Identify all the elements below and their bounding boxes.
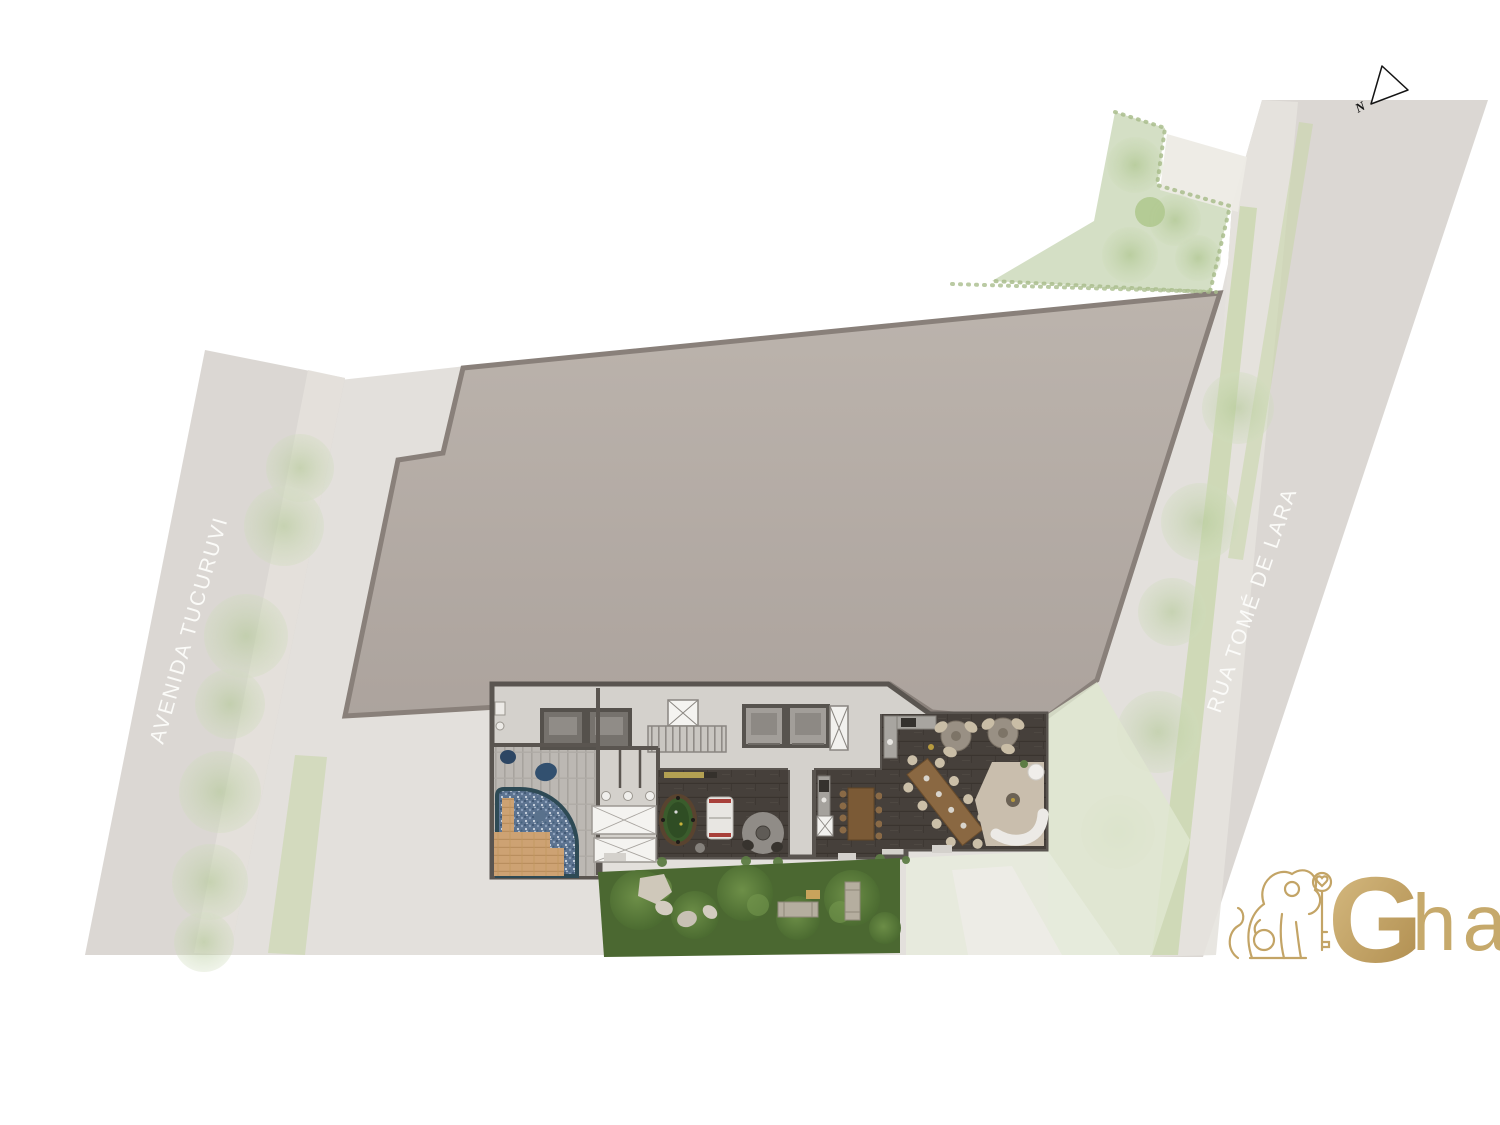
lion-key-logo-icon [1230, 870, 1331, 958]
roof-slab [345, 293, 1220, 722]
logo-letter-g: G [1328, 852, 1423, 988]
billiard-table [659, 794, 697, 846]
games-console [704, 772, 717, 778]
elevator-shaft [830, 706, 848, 750]
logo-letters-har: har [1412, 878, 1500, 967]
south-garden [598, 858, 901, 957]
pool-planter [500, 750, 516, 764]
washroom-sinks [602, 792, 655, 801]
shaft-small [817, 816, 833, 836]
pouf [695, 843, 705, 853]
tasting-counter [818, 776, 830, 816]
building-roof [345, 284, 1220, 722]
picnic-bench-vertical [845, 882, 860, 920]
north-arrow-outline-wing [1371, 66, 1408, 104]
shuffleboard [664, 772, 704, 778]
garden-northeast [992, 112, 1247, 292]
site-plan-page: AVENIDA TUCURUVI RUA TOMÉ DE LARA [0, 0, 1500, 1125]
sauna-rooms [542, 710, 630, 748]
site-plan-canvas: AVENIDA TUCURUVI RUA TOMÉ DE LARA [0, 0, 1500, 1125]
pool-wood-step-low [494, 848, 564, 876]
brand-logo: G har [1230, 852, 1500, 988]
garden-mat [806, 890, 820, 899]
elevator-left [744, 706, 784, 746]
ping-pong-table [707, 797, 733, 839]
pool-wood-step-high [494, 832, 550, 848]
pool-wood-bench [502, 798, 514, 834]
picnic-bench-horizontal [778, 902, 818, 917]
pool-lounger [534, 810, 546, 822]
skylight-upper [592, 806, 656, 834]
elevator-right [788, 706, 828, 746]
